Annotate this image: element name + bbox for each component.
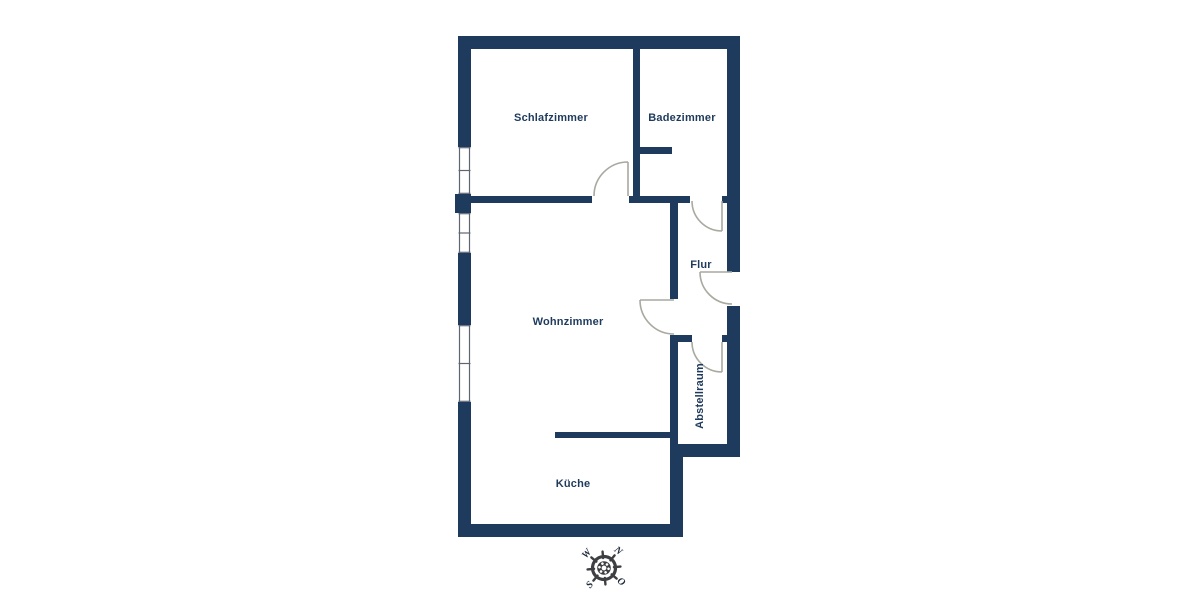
wall-segment xyxy=(458,49,471,147)
room-label-wohnzimmer: Wohnzimmer xyxy=(533,316,604,328)
wall-segment xyxy=(629,196,640,203)
wall-segment xyxy=(727,306,740,457)
room-label-schlafzimmer: Schlafzimmer xyxy=(514,112,588,124)
wall-segment xyxy=(471,196,592,203)
wall-segment xyxy=(722,196,740,203)
wall-segment xyxy=(633,49,640,203)
room-label-badezimmer: Badezimmer xyxy=(648,112,715,124)
door-schlafzimmer xyxy=(594,162,628,196)
wall-segment xyxy=(640,196,690,203)
window xyxy=(458,213,471,253)
door-wohnzimmer xyxy=(640,300,674,334)
wall-segment xyxy=(727,49,740,272)
compass-rose: N O S W xyxy=(580,544,627,591)
wall-segment xyxy=(555,432,671,438)
room-label-kueche: Küche xyxy=(556,478,591,490)
door-entrance xyxy=(700,272,732,304)
floor-plan-drawing: N O S W xyxy=(0,0,1200,600)
room-label-flur: Flur xyxy=(690,259,712,271)
wall-segment xyxy=(670,444,683,537)
wall-segment xyxy=(670,335,678,444)
wall-segment xyxy=(458,402,471,537)
window xyxy=(458,325,471,402)
wall-segment xyxy=(458,253,471,325)
wall-segment xyxy=(722,335,740,342)
wall-segment xyxy=(670,335,692,342)
wall-segment xyxy=(458,524,683,537)
wall-segment xyxy=(633,147,672,154)
wall-segment xyxy=(458,36,740,49)
wall-segment xyxy=(455,194,471,213)
room-label-abstellraum: Abstellraum xyxy=(694,363,706,429)
wall-segment xyxy=(670,203,678,299)
window xyxy=(458,147,471,194)
floor-plan-page: N O S W Schlafzimmer Badezimmer Flur Woh… xyxy=(0,0,1200,600)
door-badezimmer xyxy=(692,201,722,231)
